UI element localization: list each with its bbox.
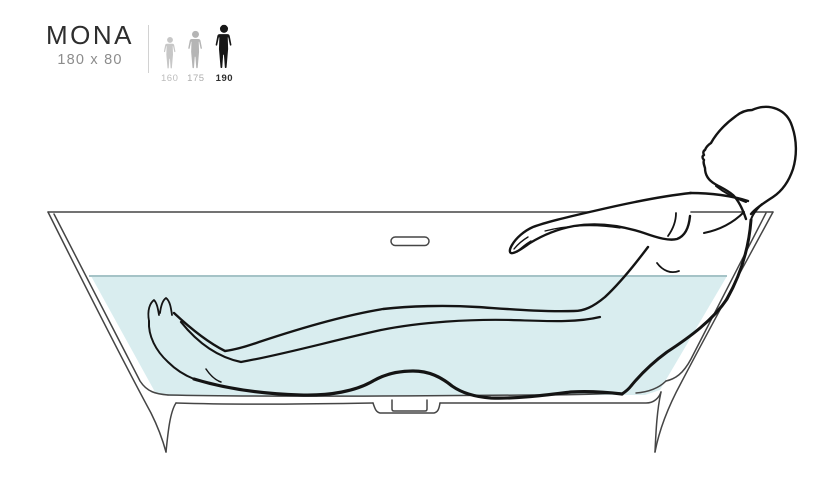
tub-right-foot-inner [655,392,661,452]
bathtub-illustration [0,0,828,480]
bathtub-product-diagram: MONA 180 x 80 160 175 190 [0,0,828,480]
person-arm-fill [510,193,691,253]
person-pec-curve [657,263,679,272]
tub-base-outer-left [176,403,373,404]
person-head-fill [703,107,796,220]
water-fill [91,276,727,396]
drain-inner-box [392,400,427,411]
person-collarbone-line [704,212,744,233]
tub-left-foot-inner [166,403,176,452]
overflow-drain [391,237,429,246]
